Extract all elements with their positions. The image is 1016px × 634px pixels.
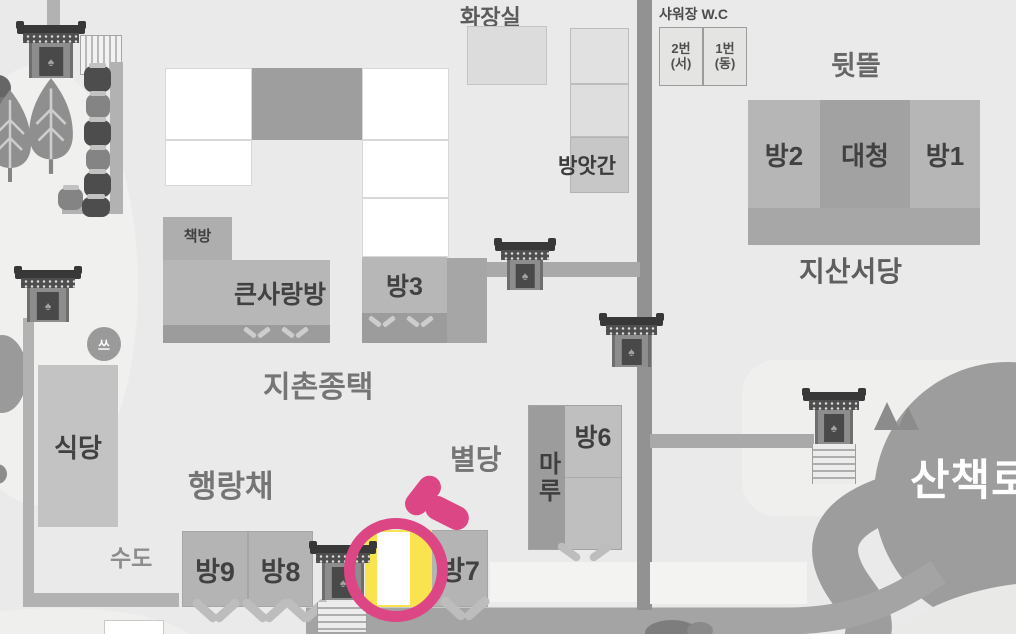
room3: 방3 [362,257,447,313]
jisan-daecheong: 대청 [820,100,910,208]
jichon-white-wing [362,68,449,140]
stall-number: 2번 [671,42,690,57]
room8: 방8 [248,531,313,607]
gate-body: ♠ [27,288,69,322]
gate-door: ♠ [621,339,641,365]
gate-body: ♠ [507,260,543,290]
facility-icon: 쓰 [87,327,121,361]
gate-icon: ♠ [603,317,660,367]
mill-building-mid [570,84,629,137]
gate-door: ♠ [39,47,63,76]
jichon-name-label: 지촌종택 [263,362,373,406]
jisan-porch [748,208,980,245]
platform-west [490,562,637,602]
dining-hall: 식당 [38,365,118,527]
spade-icon: ♠ [45,299,51,313]
big-sarangbang: 큰사랑방 [163,260,330,325]
highlight-circle [344,518,448,622]
jisan-room2: 방2 [748,100,820,208]
gate-body: ♠ [29,43,73,78]
tree-icon [26,78,76,174]
jar-icon [58,188,83,210]
room3-annex [447,258,487,343]
room6: 방6 [567,418,619,454]
spade-icon: ♠ [522,269,528,283]
gate-eaves [23,33,79,43]
platform-east [650,562,807,604]
jisan-room1: 방1 [910,100,980,208]
spade-icon: ♠ [48,55,54,69]
gate-eaves [606,325,657,335]
stall-direction: (동) [715,57,736,72]
gate-door: ♠ [824,414,844,442]
wall-south-horizontal [23,593,179,607]
shower-stall-2: 2번 (서) [659,27,703,86]
terrain-layer [0,0,1016,634]
maru: 마루 [529,406,565,549]
trail-label: 산책로 [910,446,1016,508]
jar-icon [86,148,110,171]
mill-label: 방앗간 [558,150,616,180]
main-vertical-path [637,0,652,610]
jar-icon [86,94,110,118]
gate-eaves [21,278,75,288]
jar-icon [82,197,110,217]
stall-number: 1번 [715,42,734,57]
backyard-label: 뒷뜰 [831,44,881,83]
east-horizontal-path [650,434,814,448]
gate-door: ♠ [37,292,59,320]
room-divider [565,477,621,478]
haengnangchae-label: 행랑채 [188,461,274,506]
stall-direction: (서) [671,57,692,72]
shower-stall-1: 1번 (동) [703,27,747,86]
gate-eaves [501,250,549,260]
spade-icon: ♠ [628,345,634,359]
wall-jar-yard-vertical [110,62,123,214]
jar-icon [84,66,111,92]
jichon-dark-hall [252,68,362,140]
room9: 방9 [182,531,248,607]
gate-body: ♠ [815,410,853,444]
bookroom: 책방 [163,217,232,260]
jichon-white-wing [362,140,449,198]
wall-west-vertical [23,318,34,600]
bottom-left-structure [104,620,164,634]
water-label: 수도 [110,539,152,573]
gate-icon: ♠ [806,392,862,444]
gate-eaves [809,400,859,410]
gate-body: ♠ [612,335,651,367]
gate-door: ♠ [516,264,535,288]
jar-icon [84,120,111,146]
jichon-white-wing [362,198,449,257]
toilet-building [467,26,547,85]
jichon-white-wing [165,140,252,186]
spade-icon: ♠ [831,421,837,435]
jisan-name-label: 지산서당 [799,250,902,290]
mill-building-top [570,28,629,84]
hanok-village-map: 화장실 방앗간 샤워장 W.C 2번 (서) 1번 (동) 뒷뜰 방2 대청 방… [0,0,1016,634]
gate-icon: ♠ [20,25,82,78]
bottom-left-light-area [0,608,193,634]
shower-label: 샤워장 W.C [659,4,728,24]
gate-steps [812,444,856,484]
mountain-icon [897,407,919,430]
gate-icon: ♠ [18,270,78,322]
byeoldang-label: 별당 [450,438,502,478]
gate-icon: ♠ [498,242,552,290]
jichon-white-wing [165,68,252,140]
byeoldang-building: 마루 방6 [528,405,622,550]
